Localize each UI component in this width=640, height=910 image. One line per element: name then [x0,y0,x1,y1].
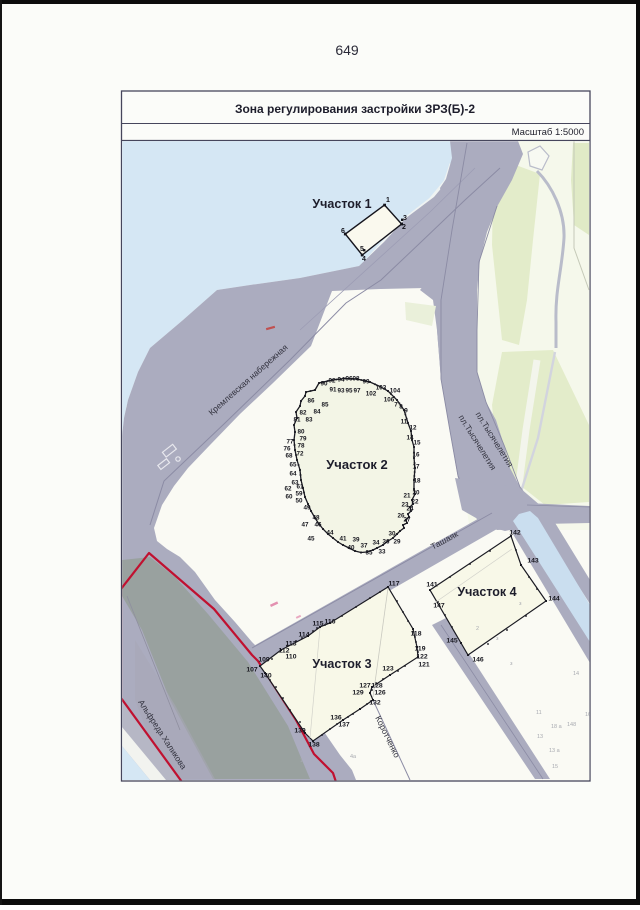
svg-text:114: 114 [299,631,310,638]
svg-text:142: 142 [509,529,521,536]
svg-text:84: 84 [313,408,321,415]
svg-text:2: 2 [476,626,479,632]
svg-text:33: 33 [378,548,386,555]
svg-text:13: 13 [537,734,543,740]
svg-text:4: 4 [362,256,366,263]
svg-text:45: 45 [307,535,315,542]
svg-text:115: 115 [313,620,324,627]
svg-text:6: 6 [341,228,345,235]
svg-text:29: 29 [393,538,401,545]
svg-text:16: 16 [412,451,420,458]
svg-text:65: 65 [289,461,297,468]
svg-text:97: 97 [353,387,361,394]
svg-text:85: 85 [321,401,329,408]
svg-text:94: 94 [337,376,345,383]
svg-text:11: 11 [401,418,408,425]
svg-text:1: 1 [386,197,390,204]
svg-text:13 а: 13 а [549,748,561,754]
svg-text:35: 35 [365,549,373,556]
svg-text:117: 117 [389,580,400,587]
svg-text:60: 60 [285,493,293,500]
svg-text:126: 126 [374,689,386,696]
svg-text:5: 5 [360,246,364,253]
svg-text:44: 44 [326,529,334,536]
svg-text:62: 62 [284,485,292,492]
svg-text:92: 92 [328,377,336,384]
svg-text:132: 132 [369,699,381,706]
svg-text:14: 14 [573,671,579,677]
svg-text:30: 30 [388,530,396,537]
svg-text:15: 15 [552,764,558,770]
svg-text:119: 119 [415,645,426,652]
svg-text:93: 93 [337,387,345,394]
svg-text:8: 8 [399,403,403,410]
svg-text:50: 50 [295,497,303,504]
svg-text:127: 127 [359,682,371,689]
svg-text:81: 81 [293,416,301,423]
svg-text:4а: 4а [350,754,357,760]
svg-text:107: 107 [246,666,258,673]
svg-text:39: 39 [352,536,360,543]
svg-text:49: 49 [303,504,311,511]
svg-text:139: 139 [294,727,306,734]
svg-text:15: 15 [413,439,421,446]
svg-text:3: 3 [403,215,407,222]
svg-text:145: 145 [446,637,458,644]
svg-text:12: 12 [409,424,417,431]
svg-text:18 а: 18 а [551,724,563,730]
svg-text:116: 116 [325,618,336,625]
svg-text:649: 649 [335,42,359,58]
svg-text:141: 141 [426,581,438,588]
svg-text:79: 79 [299,435,307,442]
svg-text:34: 34 [372,539,380,546]
svg-text:143: 143 [527,557,539,564]
svg-text:122: 122 [416,653,428,660]
svg-text:24: 24 [406,505,414,512]
svg-text:78: 78 [297,442,305,449]
svg-text:47: 47 [301,521,309,528]
svg-text:102: 102 [366,390,377,397]
svg-text:41: 41 [339,535,347,542]
svg-text:27: 27 [403,516,411,523]
svg-text:Участок 2: Участок 2 [326,457,388,472]
svg-text:36: 36 [382,538,390,545]
svg-text:80: 80 [297,428,305,435]
svg-text:37: 37 [360,542,368,549]
svg-text:106: 106 [384,396,395,403]
svg-text:72: 72 [296,450,304,457]
svg-text:136: 136 [330,714,342,721]
svg-text:48: 48 [312,514,320,521]
svg-text:129: 129 [352,689,364,696]
svg-text:104: 104 [390,387,401,394]
svg-text:98: 98 [352,375,360,382]
svg-text:99: 99 [362,378,370,385]
svg-text:11: 11 [536,710,542,716]
svg-text:7: 7 [394,401,398,408]
svg-text:1: 1 [300,758,303,764]
svg-text:64: 64 [289,470,297,477]
svg-text:86: 86 [307,397,315,404]
svg-text:9: 9 [404,407,408,414]
svg-text:95: 95 [345,387,353,394]
svg-text:140: 140 [260,672,272,679]
svg-text:59: 59 [295,490,303,497]
svg-text:109: 109 [258,656,270,663]
svg-text:144: 144 [548,595,560,602]
svg-text:Зона регулирования застройки З: Зона регулирования застройки ЗРЗ(Б)-2 [235,102,475,116]
svg-text:Масштаб 1:5000: Масштаб 1:5000 [512,127,584,138]
svg-text:137: 137 [338,721,350,728]
svg-text:76: 76 [283,445,291,452]
svg-text:14: 14 [406,434,414,441]
svg-text:18: 18 [413,477,421,484]
svg-text:Участок 4: Участок 4 [457,585,516,599]
svg-text:82: 82 [299,409,307,416]
svg-text:110: 110 [286,653,297,660]
svg-text:121: 121 [418,661,430,668]
svg-text:61: 61 [296,483,304,490]
svg-text:90: 90 [320,380,328,387]
svg-text:68: 68 [285,452,293,459]
svg-text:103: 103 [376,384,387,391]
svg-text:123: 123 [382,665,394,672]
svg-text:148: 148 [567,722,576,728]
svg-text:20: 20 [412,489,420,496]
svg-text:22: 22 [411,498,419,505]
svg-text:83: 83 [305,416,313,423]
svg-text:Участок 3: Участок 3 [312,657,371,671]
svg-text:113: 113 [286,640,297,647]
svg-text:46: 46 [314,521,322,528]
svg-text:17: 17 [412,463,420,470]
svg-text:128: 128 [371,682,383,689]
svg-text:2: 2 [402,224,406,231]
svg-text:138: 138 [308,741,320,748]
svg-text:118: 118 [411,630,422,637]
svg-text:91: 91 [329,386,337,393]
svg-text:146: 146 [472,656,484,663]
svg-text:21: 21 [403,492,411,499]
svg-text:147: 147 [433,602,445,609]
svg-text:Участок 1: Участок 1 [312,197,371,211]
svg-text:112: 112 [279,647,290,654]
svg-text:77: 77 [286,438,294,445]
svg-text:40: 40 [347,544,355,551]
